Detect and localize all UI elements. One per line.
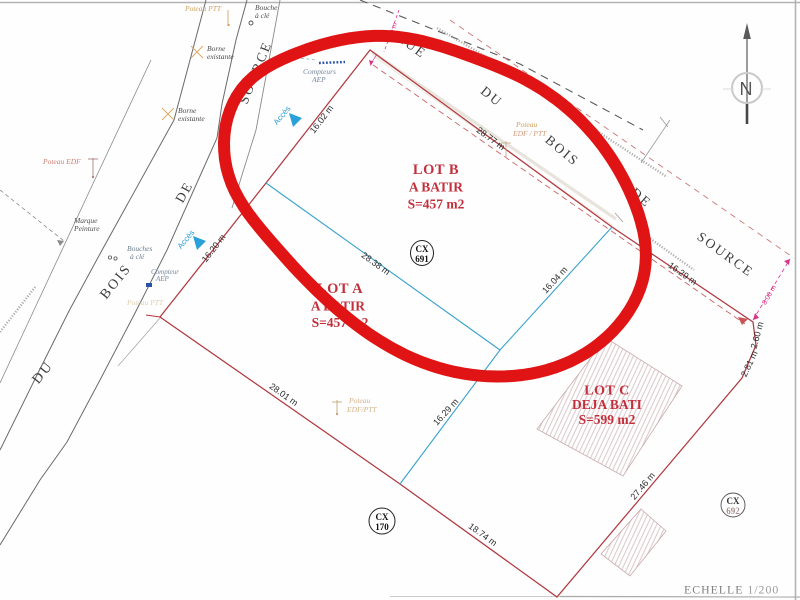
svg-text:EDF / PTT: EDF / PTT	[512, 129, 547, 138]
svg-text:Poteau EDF: Poteau EDF	[42, 157, 81, 166]
svg-text:existante: existante	[207, 52, 234, 61]
svg-text:DEJA BATI: DEJA BATI	[572, 397, 642, 412]
svg-text:EDF/PTT: EDF/PTT	[346, 405, 377, 414]
svg-text:à clé: à clé	[130, 252, 145, 261]
svg-text:Poteau: Poteau	[515, 120, 537, 129]
svg-text:N: N	[740, 79, 753, 99]
svg-text:Poteau PTT: Poteau PTT	[184, 4, 222, 13]
svg-text:S=599 m2: S=599 m2	[579, 412, 636, 427]
svg-text:Poteau PTT: Poteau PTT	[126, 298, 164, 307]
svg-text:CX: CX	[376, 512, 389, 522]
svg-text:A BATIR: A BATIR	[409, 180, 463, 195]
svg-text:691: 691	[415, 254, 429, 264]
svg-text:S=457 m2: S=457 m2	[408, 197, 465, 212]
svg-text:692: 692	[726, 506, 740, 516]
svg-text:CX: CX	[727, 496, 740, 506]
svg-text:existante: existante	[178, 114, 205, 123]
svg-text:AEP: AEP	[155, 275, 170, 283]
svg-text:Peinture: Peinture	[73, 224, 100, 233]
svg-text:CX: CX	[416, 244, 429, 254]
svg-text:LOT B: LOT B	[413, 162, 459, 178]
svg-text:à clé: à clé	[255, 11, 270, 20]
svg-text:170: 170	[375, 522, 389, 532]
svg-text:Poteau: Poteau	[348, 396, 370, 405]
svg-text:AEP: AEP	[311, 75, 326, 84]
svg-text:ECHELLE 1/200: ECHELLE 1/200	[684, 583, 779, 597]
